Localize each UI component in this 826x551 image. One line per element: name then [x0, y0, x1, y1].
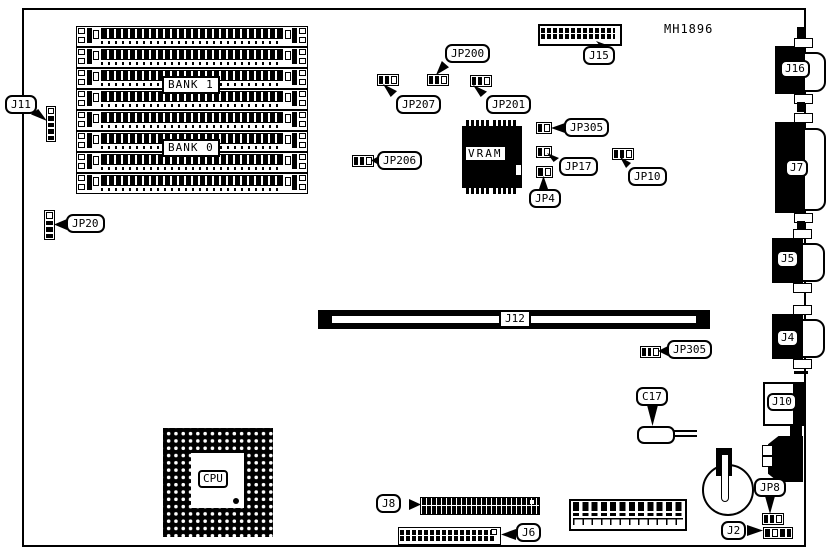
j8-pin1-mark — [530, 500, 534, 504]
c17-lead — [672, 430, 697, 432]
power-connector — [569, 499, 687, 531]
din-notch — [762, 456, 773, 467]
j16-label: J16 — [780, 60, 810, 78]
power-pin-holes — [573, 518, 683, 525]
jp305-top-callout: JP305 — [564, 118, 609, 137]
j12-label: J12 — [499, 310, 531, 328]
slot-endcap — [77, 174, 100, 193]
j5-mount-tab — [793, 283, 812, 293]
jp10-callout: JP10 — [628, 167, 667, 186]
edge-post — [797, 102, 805, 112]
bank0-label: BANK 0 — [162, 139, 220, 157]
j4-mount-tab — [793, 359, 812, 369]
j4-label: J4 — [776, 329, 799, 347]
slot-endcap — [284, 48, 307, 67]
jp206-jumper — [352, 155, 374, 167]
j7-label: J7 — [785, 159, 808, 177]
slot-endcap — [77, 27, 100, 46]
slot-endcap — [77, 111, 100, 130]
slot-endcap — [284, 90, 307, 109]
slot-endcap — [284, 153, 307, 172]
c17-lead — [672, 435, 697, 437]
jp206-callout: JP206 — [377, 151, 422, 170]
jp200-callout: JP200 — [445, 44, 490, 63]
jp207-jumper — [377, 74, 399, 86]
simm-slot — [76, 110, 308, 131]
jp207-callout: JP207 — [396, 95, 441, 114]
j6-callout: J6 — [516, 523, 541, 542]
j5-label: J5 — [776, 250, 799, 268]
j2-callout: J2 — [721, 521, 746, 540]
jp8-callout: JP8 — [754, 478, 786, 497]
jp305-mid-jumper — [640, 346, 661, 358]
j4-dsub-shell — [800, 319, 825, 358]
jp200-jumper — [427, 74, 449, 86]
cpu-label: CPU — [198, 470, 228, 488]
j11-header — [46, 106, 56, 142]
jp17-callout: JP17 — [559, 157, 598, 176]
c17-callout: C17 — [636, 387, 668, 406]
slot-endcap — [284, 132, 307, 151]
jp201-callout: JP201 — [486, 95, 531, 114]
j16-mount-tab — [794, 38, 813, 48]
jp4-jumper — [536, 166, 553, 178]
jp10-jumper — [612, 148, 634, 160]
jp305-mid-callout: JP305 — [667, 340, 712, 359]
vram-pins — [493, 188, 518, 194]
cpu-pin1-dot — [233, 498, 239, 504]
j6-pin1-mark — [491, 529, 497, 535]
power-pins — [573, 502, 683, 511]
j2-header — [763, 527, 793, 539]
board-part-number: MH1896 — [664, 22, 713, 36]
slot-endcap — [77, 90, 100, 109]
simm-slot — [76, 47, 308, 68]
vram-pins — [466, 188, 490, 194]
slot-endcap — [77, 48, 100, 67]
din-notch — [762, 445, 773, 456]
edge-tick — [794, 371, 808, 374]
simm-slot — [76, 26, 308, 47]
jp4-callout: JP4 — [529, 189, 561, 208]
vram-notch — [516, 165, 521, 175]
jp20-callout: JP20 — [66, 214, 105, 233]
j15-connector — [538, 24, 622, 46]
j8-callout: J8 — [376, 494, 401, 513]
slot-endcap — [284, 69, 307, 88]
battery-clip-arm — [721, 454, 729, 502]
j5-dsub-shell — [800, 243, 825, 282]
jp20-jumper — [44, 210, 55, 240]
slot-endcap — [284, 111, 307, 130]
slot-endcap — [284, 174, 307, 193]
din-keyboard-connector — [768, 436, 803, 482]
jp8-jumper — [762, 513, 784, 525]
vram-label: VRAM — [465, 146, 506, 161]
j8-connector — [420, 497, 540, 515]
motherboard-diagram: MH1896 BANK 1 BANK 0 J11 JP20 JP207 JP20… — [0, 0, 826, 551]
bank1-label: BANK 1 — [162, 76, 220, 94]
c17-capacitor — [637, 426, 675, 444]
slot-endcap — [77, 69, 100, 88]
j5-mount-tab — [793, 229, 812, 239]
slot-endcap — [284, 27, 307, 46]
j11-callout: J11 — [5, 95, 37, 114]
j4-mount-tab — [793, 305, 812, 315]
j15-callout: J15 — [583, 46, 615, 65]
jp305-top-jumper — [536, 122, 552, 134]
simm-slot — [76, 173, 308, 194]
edge-post — [797, 27, 805, 39]
j6-connector — [398, 527, 501, 545]
slot-endcap — [77, 153, 100, 172]
j7-mount-tab — [794, 113, 813, 123]
slot-endcap — [77, 132, 100, 151]
j10-label: J10 — [767, 393, 797, 411]
power-pins-row — [573, 513, 683, 516]
